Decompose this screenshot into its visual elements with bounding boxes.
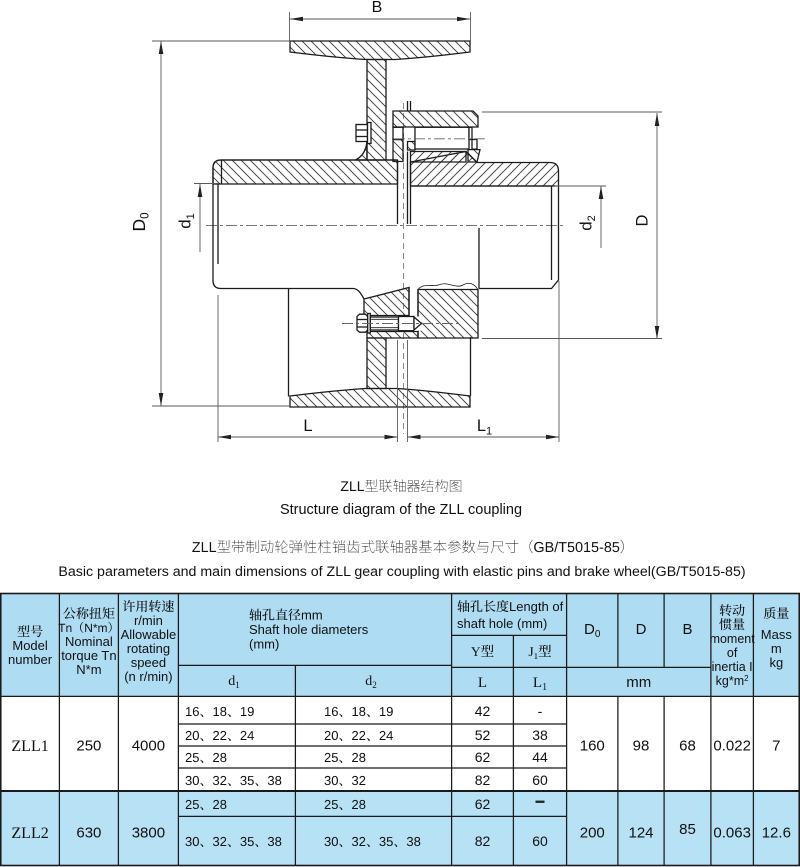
- svg-text:62: 62: [475, 796, 491, 812]
- svg-text:shaft hole (mm): shaft hole (mm): [457, 616, 547, 631]
- svg-text:Mass: Mass: [761, 627, 793, 642]
- svg-text:250: 250: [76, 738, 101, 755]
- svg-text:torque Tn: torque Tn: [61, 648, 116, 663]
- svg-text:speed: speed: [131, 655, 166, 670]
- svg-text:Basic parameters and main dime: Basic parameters and main dimensions of …: [58, 564, 745, 580]
- svg-text:moment: moment: [710, 632, 756, 646]
- svg-text:42: 42: [475, 703, 491, 719]
- svg-text:ZLL1: ZLL1: [11, 738, 48, 755]
- svg-text:3800: 3800: [132, 825, 165, 842]
- svg-text:38: 38: [532, 727, 548, 743]
- svg-text:60: 60: [532, 772, 548, 788]
- svg-text:52: 52: [475, 727, 491, 743]
- svg-text:rotating: rotating: [127, 641, 170, 656]
- svg-text:r/min: r/min: [134, 613, 163, 628]
- svg-text:(n r/min): (n r/min): [124, 669, 172, 684]
- svg-text:-: -: [538, 703, 543, 719]
- svg-text:L: L: [478, 675, 487, 691]
- svg-text:m: m: [771, 641, 782, 656]
- svg-text:7: 7: [772, 738, 780, 755]
- svg-text:Structure diagram of the ZLL c: Structure diagram of the ZLL coupling: [280, 502, 522, 518]
- svg-text:Shaft hole diameters: Shaft hole diameters: [249, 622, 369, 637]
- svg-text:B: B: [372, 0, 383, 16]
- svg-text:98: 98: [633, 738, 650, 755]
- svg-text:82: 82: [475, 772, 491, 788]
- svg-text:200: 200: [580, 825, 605, 842]
- svg-text:124: 124: [628, 825, 653, 842]
- svg-text:82: 82: [475, 833, 491, 849]
- svg-text:0.063: 0.063: [713, 825, 751, 842]
- svg-text:44: 44: [532, 749, 548, 765]
- svg-text:Nominal: Nominal: [65, 634, 113, 649]
- svg-text:of: of: [727, 646, 738, 660]
- svg-text:60: 60: [532, 833, 548, 849]
- svg-text:(mm): (mm): [249, 637, 279, 652]
- svg-text:630: 630: [76, 825, 101, 842]
- svg-text:12.6: 12.6: [762, 825, 791, 842]
- svg-text:kg*m2: kg*m2: [716, 674, 749, 688]
- svg-text:inertia I: inertia I: [712, 660, 753, 674]
- svg-text:number: number: [8, 652, 53, 667]
- svg-text:N*m: N*m: [76, 662, 101, 677]
- svg-text:kg: kg: [769, 655, 783, 670]
- svg-text:85: 85: [679, 821, 696, 838]
- svg-text:62: 62: [475, 749, 491, 765]
- svg-text:mm: mm: [626, 674, 651, 691]
- svg-text:4000: 4000: [132, 738, 165, 755]
- svg-text:Model: Model: [12, 638, 48, 653]
- svg-text:D: D: [636, 621, 647, 638]
- svg-text:ZLL2: ZLL2: [11, 825, 48, 842]
- svg-text:160: 160: [580, 738, 605, 755]
- svg-text:68: 68: [679, 738, 696, 755]
- svg-text:B: B: [682, 621, 692, 638]
- svg-text:D: D: [634, 214, 652, 226]
- svg-text:L: L: [303, 417, 312, 435]
- svg-text:0.022: 0.022: [713, 738, 751, 755]
- svg-text:Allowable: Allowable: [121, 627, 177, 642]
